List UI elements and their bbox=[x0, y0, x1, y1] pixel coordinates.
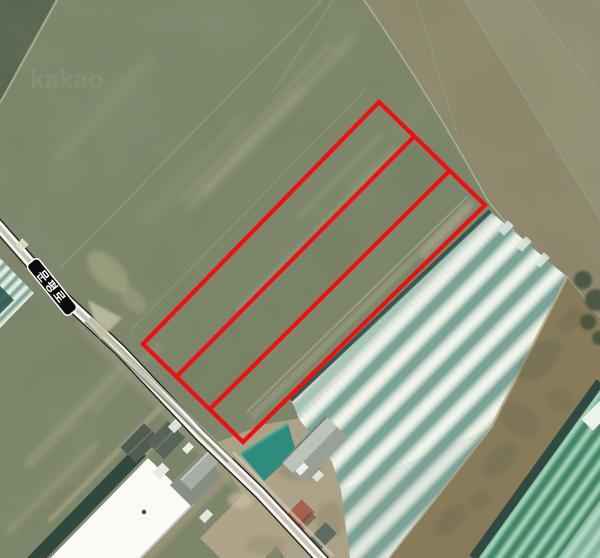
svg-text:kakao: kakao bbox=[30, 64, 104, 94]
